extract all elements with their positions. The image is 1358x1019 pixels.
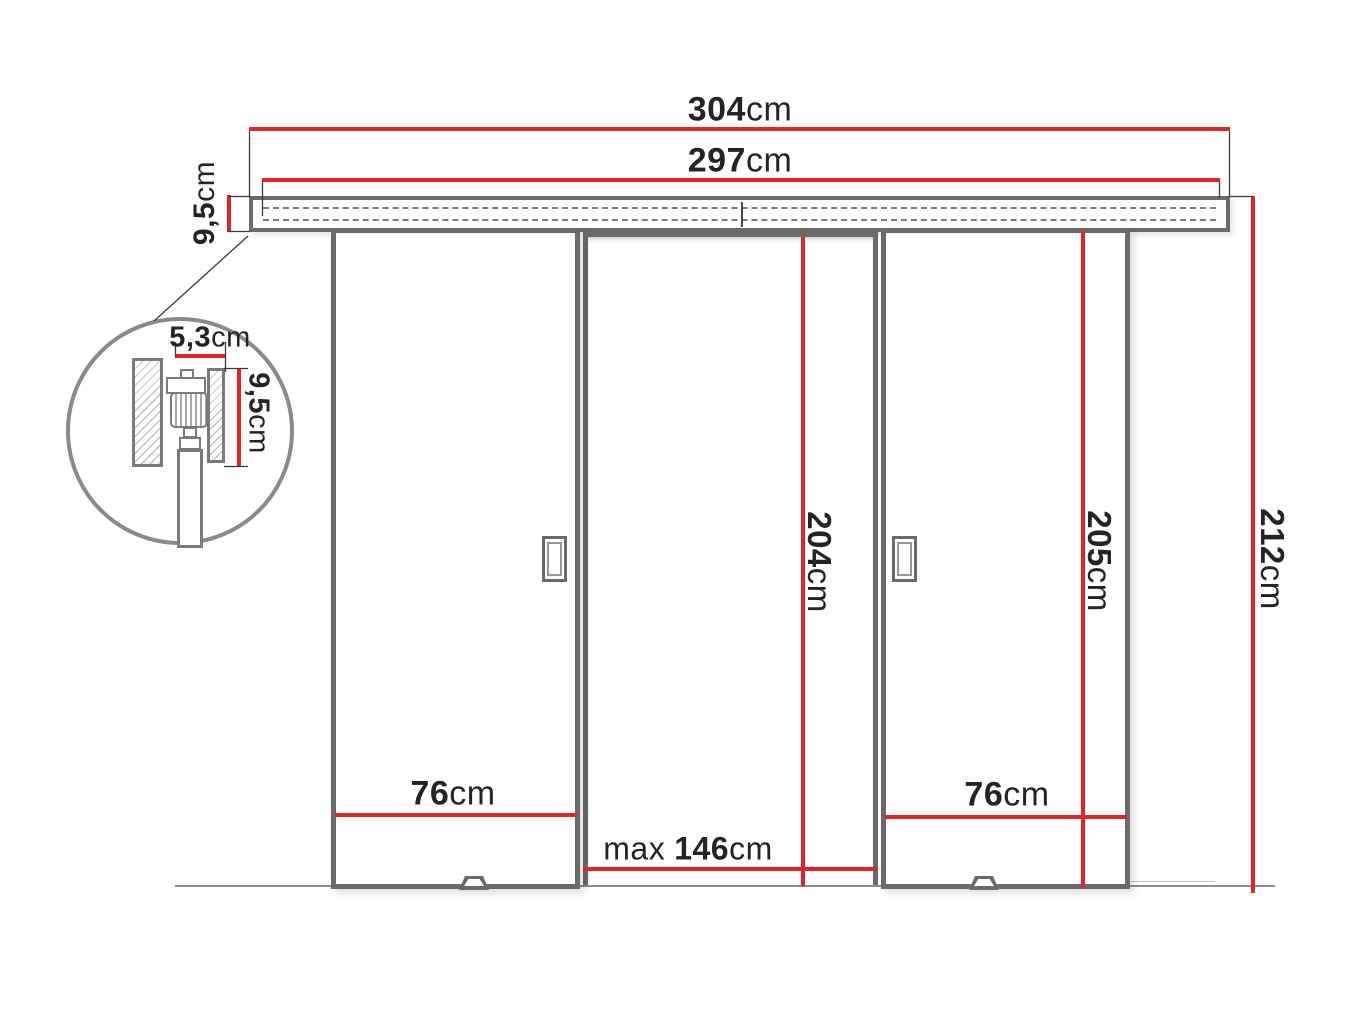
dim-unit: cm (729, 831, 773, 867)
dim-line-left-door-width (335, 813, 577, 817)
dim-label-max-passage: max146cm (603, 831, 773, 868)
rail-dashed-line-upper (263, 207, 1216, 209)
dim-line-detail-width (175, 354, 225, 358)
dim-prefix: max (603, 831, 665, 867)
dim-value: 212 (1254, 508, 1291, 565)
dim-unit: cm (243, 414, 275, 454)
left-door-handle-inner (547, 542, 562, 576)
dim-unit: cm (188, 161, 221, 202)
dim-label-door-height: 205cm (1080, 510, 1118, 612)
dim-unit: cm (449, 775, 495, 813)
dim-value: 297 (688, 142, 746, 180)
detail-wall-block-right (207, 368, 225, 463)
dim-line-max-passage (583, 867, 877, 871)
dim-unit: cm (746, 142, 792, 180)
dim-label-detail-width: 5,3cm (169, 322, 251, 355)
dim-value: 5,3 (169, 322, 211, 354)
rail-dashed-line-lower (263, 219, 1216, 221)
dim-label-right-door-width: 76cm (964, 776, 1049, 815)
dim-label-left-door-width: 76cm (410, 775, 495, 814)
dim-value: 9,5 (243, 372, 275, 414)
dim-line-track-height (227, 195, 231, 232)
top-rail (249, 196, 1230, 232)
dim-label-total-height: 212cm (1253, 508, 1291, 610)
right-door-handle-inner (897, 542, 912, 576)
dim-value: 146 (674, 831, 729, 867)
sliding-door-dimension-diagram: 304cm 297cm 9,5cm 5,3cm 9,5cm 204cm 205c… (0, 0, 1358, 1019)
dim-line-right-door-width (885, 815, 1127, 819)
detail-door-bar (177, 449, 203, 548)
dim-value: 304 (688, 91, 746, 129)
dim-label-opening-height: 204cm (800, 511, 838, 613)
dim-label-total-width: 304cm (688, 91, 793, 130)
dim-unit: cm (211, 322, 251, 354)
dim-value: 76 (410, 775, 449, 813)
dim-line-detail-height (237, 368, 241, 467)
dim-value: 76 (964, 776, 1003, 814)
dim-unit: cm (746, 91, 792, 129)
dim-label-track-width: 297cm (688, 142, 793, 181)
dim-value: 205 (1081, 510, 1118, 567)
dim-label-detail-height: 9,5cm (242, 372, 275, 454)
dim-label-track-height: 9,5cm (188, 161, 222, 245)
dim-unit: cm (801, 568, 838, 613)
detail-wall-block-left (132, 358, 163, 467)
detail-pointer-line (154, 236, 248, 321)
dim-value: 9,5 (188, 202, 221, 245)
rail-center-mark (741, 202, 743, 227)
detail-roller (170, 392, 208, 428)
dim-unit: cm (1003, 776, 1049, 814)
dim-unit: cm (1254, 565, 1291, 610)
dim-value: 204 (801, 511, 838, 568)
dim-unit: cm (1081, 567, 1118, 612)
